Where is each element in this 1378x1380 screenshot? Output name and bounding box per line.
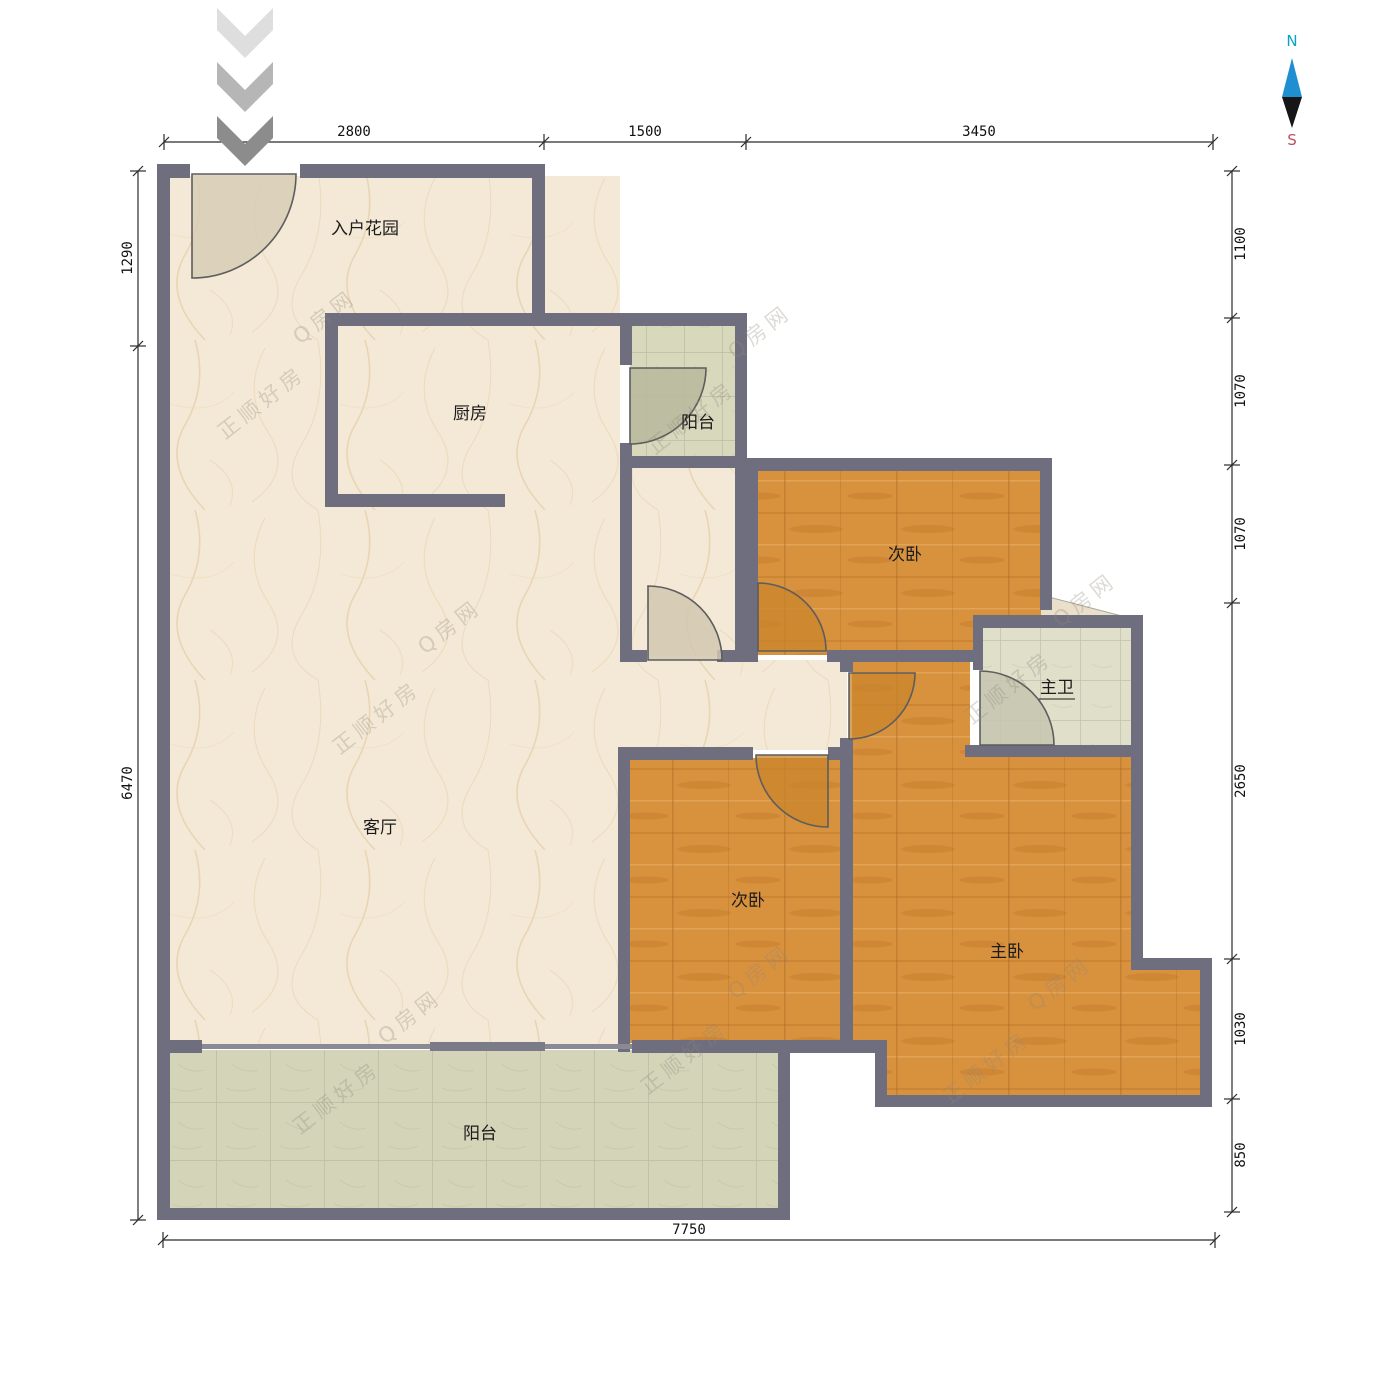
hall-floor-south: [620, 660, 847, 750]
dim-right-2: 1070: [1233, 374, 1249, 408]
compass-south-label: S: [1287, 131, 1297, 149]
dim-left-2: 6470: [120, 766, 136, 800]
dim-bottom-1: 7750: [672, 1222, 706, 1238]
wall-bedroom-north-left: [735, 458, 758, 662]
dim-right-4: 2650: [1233, 764, 1249, 798]
wall-balcony-south-bottom: [157, 1208, 790, 1220]
wall-master-right-lower: [1200, 958, 1212, 1107]
wall-kitchen-balcony-top: [325, 313, 747, 326]
compass: N S: [1282, 32, 1302, 149]
dim-top-2: 1500: [628, 124, 662, 140]
living-room-floor: [168, 176, 620, 1044]
chevron-3: [217, 116, 273, 166]
wall-balcony-south-right: [778, 1052, 790, 1220]
room-label-balcony-north: 阳台: [681, 413, 715, 433]
room-label-balcony-south: 阳台: [463, 1124, 497, 1144]
chevron-2: [217, 62, 273, 112]
wall-garden-right: [532, 164, 545, 326]
living-balcony-slider-mullion: [430, 1042, 545, 1051]
wall-bedroom-south-left: [618, 747, 630, 1052]
wall-master-left-stub: [840, 662, 853, 672]
dim-right-6: 850: [1233, 1142, 1249, 1167]
living-balcony-slider[interactable]: [202, 1044, 632, 1049]
dim-right-5: 1030: [1233, 1012, 1249, 1046]
wall-living-bottom-left: [157, 1040, 202, 1053]
wall-master-step: [1131, 958, 1212, 970]
room-label-bedroom-south: 次卧: [731, 891, 765, 911]
wall-hall-bottom-a: [620, 650, 647, 662]
compass-north-label: N: [1286, 32, 1297, 50]
wall-bath-master-right: [1131, 615, 1143, 970]
wall-balcony-north-bottom: [630, 456, 747, 468]
compass-needle-north: [1282, 58, 1302, 97]
chevron-1: [217, 8, 273, 58]
wall-hall-left-lower: [620, 443, 632, 662]
dim-top-1: 2800: [337, 124, 371, 140]
wall-left-outer: [157, 164, 170, 1220]
wall-bedroom-south-bottom: [632, 1040, 887, 1053]
wall-master-bottom: [875, 1095, 1212, 1107]
room-label-living-room: 客厅: [363, 818, 397, 838]
wall-kitchen-bottom: [325, 494, 505, 507]
floor-plan-canvas: Q房网 正顺好房 Q房网 正顺好房 Q房网 正顺好房 Q房网 正顺好房 Q房网 …: [0, 0, 1378, 1380]
wall-bath-left: [973, 628, 983, 670]
floor-plan-page: Q房网 正顺好房 Q房网 正顺好房 Q房网 正顺好房 Q房网 正顺好房 Q房网 …: [0, 0, 1378, 1380]
compass-needle-south: [1282, 97, 1302, 128]
wall-bedroom-south-top-stub: [828, 747, 853, 760]
room-label-kitchen: 厨房: [453, 404, 487, 424]
dim-left-1: 1290: [120, 241, 136, 275]
wall-top-main: [300, 164, 545, 178]
wall-bedroom-south-top: [618, 747, 753, 760]
room-label-entry-garden: 入户花园: [331, 219, 399, 239]
wall-bedroom-north-bottom: [827, 650, 973, 662]
wall-hall-left-upper: [620, 313, 632, 365]
wall-bath-bottom: [965, 745, 1143, 757]
wall-bedroom-north-top: [746, 458, 1052, 471]
room-label-bedroom-north: 次卧: [888, 545, 922, 565]
dim-right-3: 1070: [1233, 517, 1249, 551]
wall-bedroom-north-right: [1040, 458, 1052, 610]
room-label-master-bedroom: 主卧: [990, 942, 1024, 962]
room-label-master-bath: 主卫: [1040, 678, 1074, 698]
dim-right-1: 1100: [1233, 227, 1249, 261]
dim-top-3: 3450: [962, 124, 996, 140]
wall-master-left: [840, 738, 853, 1052]
wall-kitchen-left: [325, 313, 338, 507]
